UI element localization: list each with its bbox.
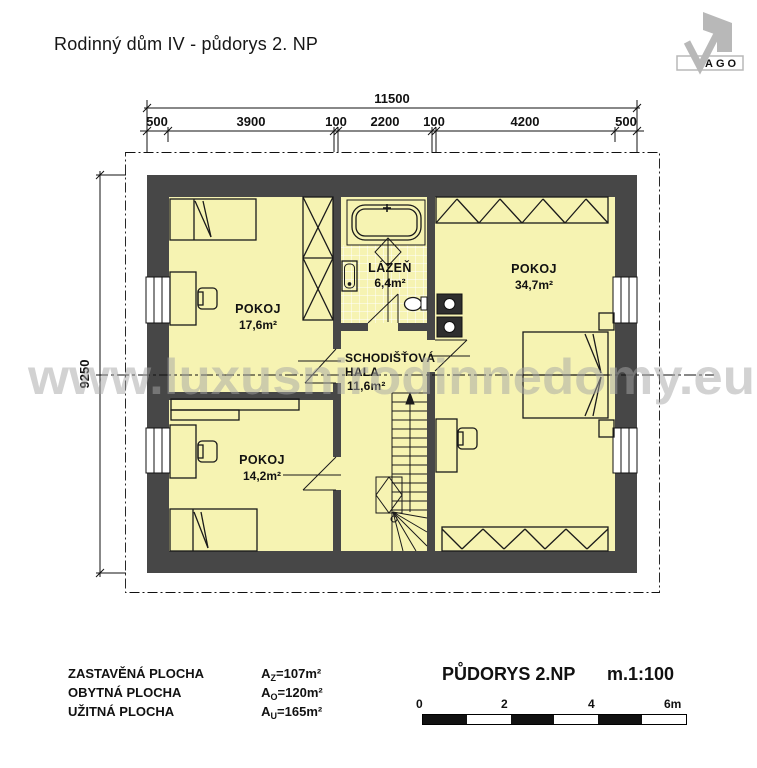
legend-value: =165m² [277, 704, 322, 719]
dim-seg-4: 2200 [371, 114, 400, 129]
logo-text: AGO [705, 58, 739, 70]
toilet-icon [405, 298, 422, 311]
dim-seg-1: 500 [146, 114, 168, 129]
dim-seg-5: 100 [423, 114, 445, 129]
legend-label: ZASTAVĚNÁ PLOCHA [68, 664, 258, 683]
scale-tick-2: 2 [501, 697, 508, 711]
legend-label: UŽITNÁ PLOCHA [68, 702, 258, 721]
watermark-text: www.luxusnirodinnedomy.eu [27, 349, 755, 405]
drawing-scale: m.1:100 [607, 664, 674, 685]
scale-segment [642, 715, 686, 724]
scale-bar [422, 714, 687, 725]
scale-tick-4: 4 [588, 697, 595, 711]
legend-symbol: A [261, 685, 270, 700]
room1-name: POKOJ [235, 302, 281, 316]
floor-plan-drawing: 11500 500 3900 100 2200 100 4200 500 925… [0, 0, 757, 768]
room1-area: 17,6m² [239, 318, 277, 332]
room3-area: 14,2m² [243, 469, 281, 483]
drawing-title: PŮDORYS 2.NP [442, 664, 575, 685]
dim-total-width: 11500 [374, 91, 409, 106]
scale-tick-0: 0 [416, 697, 423, 711]
legend-row: OBYTNÁ PLOCHA AO=120m² [68, 683, 323, 702]
scale-tick-6m: 6m [664, 697, 681, 711]
page-title: Rodinný dům IV - půdorys 2. NP [54, 34, 318, 55]
legend-row: UŽITNÁ PLOCHA AU=165m² [68, 702, 323, 721]
area-legend: ZASTAVĚNÁ PLOCHA AZ=107m² OBYTNÁ PLOCHA … [68, 664, 323, 721]
vago-logo: AGO [663, 4, 751, 78]
scale-segment [598, 715, 642, 724]
legend-symbol: A [261, 704, 270, 719]
legend-value: =120m² [278, 685, 323, 700]
scale-segment [423, 715, 467, 724]
room2-name: POKOJ [511, 262, 557, 276]
scale-segment [467, 715, 511, 724]
room2-area: 34,7m² [515, 278, 553, 292]
dim-seg-7: 500 [615, 114, 637, 129]
bath-area: 6,4m² [374, 276, 405, 290]
dim-seg-6: 4200 [511, 114, 540, 129]
legend-row: ZASTAVĚNÁ PLOCHA AZ=107m² [68, 664, 323, 683]
bath-name: LÁZEŇ [368, 260, 412, 275]
room3-name: POKOJ [239, 453, 285, 467]
legend-label: OBYTNÁ PLOCHA [68, 683, 258, 702]
dim-seg-2: 3900 [237, 114, 266, 129]
legend-value: =107m² [276, 666, 321, 681]
scale-segment [554, 715, 598, 724]
scale-segment [511, 715, 555, 724]
legend-subscript: O [271, 692, 278, 702]
legend-symbol: A [261, 666, 270, 681]
dim-seg-3: 100 [325, 114, 347, 129]
